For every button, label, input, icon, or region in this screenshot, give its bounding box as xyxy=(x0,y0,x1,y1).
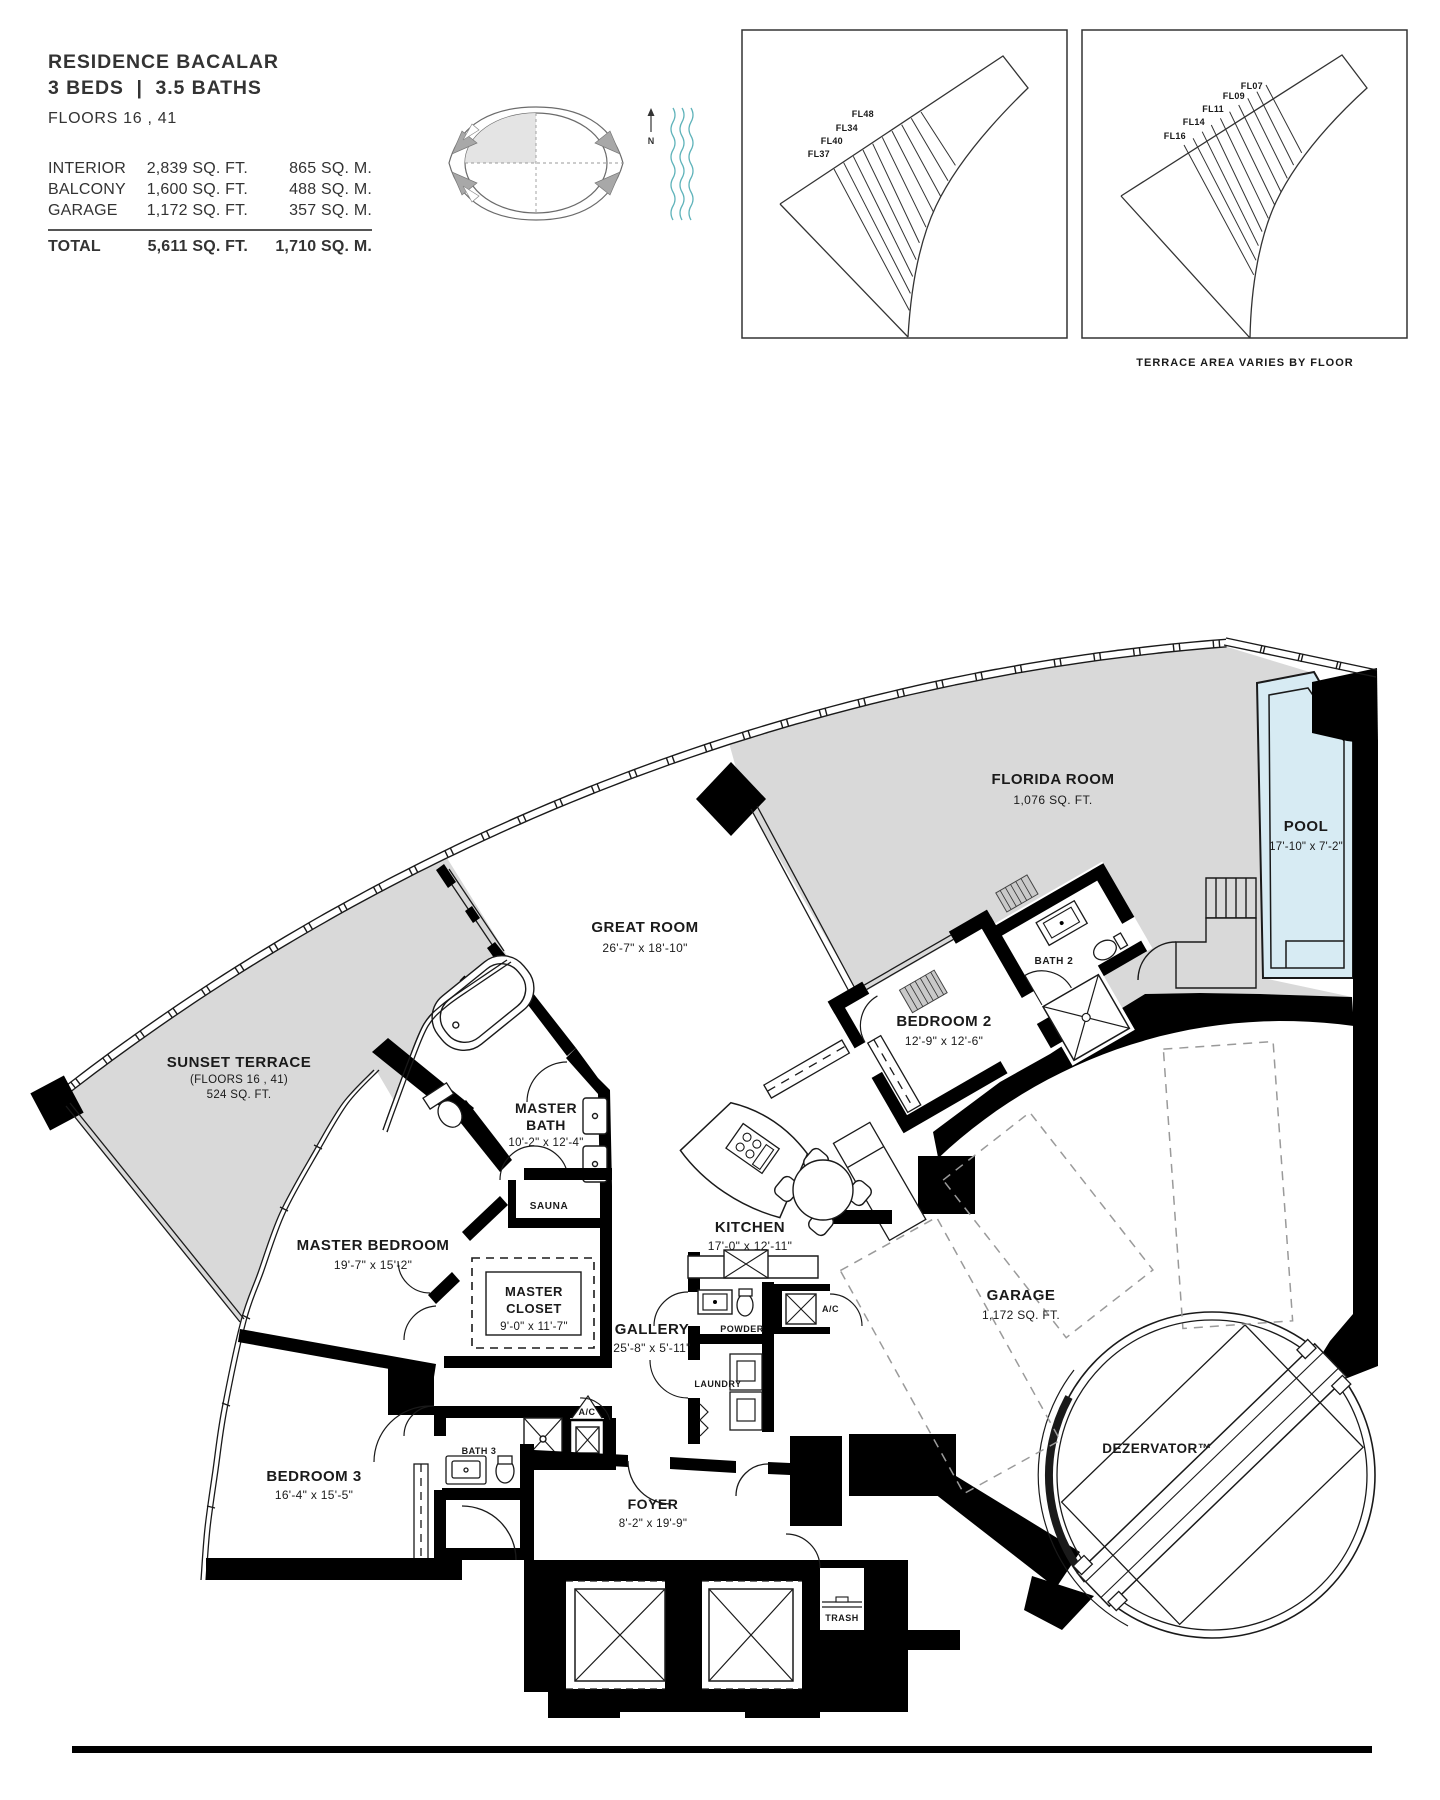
svg-text:FL34: FL34 xyxy=(836,123,858,133)
svg-text:LAUNDRY: LAUNDRY xyxy=(694,1379,741,1389)
svg-text:TRASH: TRASH xyxy=(825,1613,859,1623)
svg-text:(FLOORS 16 , 41): (FLOORS 16 , 41) xyxy=(190,1074,288,1086)
svg-text:FL14: FL14 xyxy=(1183,117,1205,127)
svg-text:FL37: FL37 xyxy=(808,149,830,159)
svg-text:BATH: BATH xyxy=(526,1117,566,1133)
svg-text:BATH 2: BATH 2 xyxy=(1035,956,1074,967)
svg-text:FL11: FL11 xyxy=(1202,104,1224,114)
svg-text:GARAGE: GARAGE xyxy=(987,1287,1056,1304)
svg-text:GALLERY: GALLERY xyxy=(615,1321,690,1338)
svg-text:TERRACE AREA VARIES BY FLOOR: TERRACE AREA VARIES BY FLOOR xyxy=(1136,357,1353,369)
svg-text:MASTER: MASTER xyxy=(515,1100,577,1116)
svg-text:8'-2" x 19'-9": 8'-2" x 19'-9" xyxy=(619,1518,688,1530)
svg-text:26'-7" x 18'-10": 26'-7" x 18'-10" xyxy=(602,941,687,955)
svg-text:17'-10" x 7'-2": 17'-10" x 7'-2" xyxy=(1269,841,1343,853)
svg-text:MASTER BEDROOM: MASTER BEDROOM xyxy=(297,1237,450,1254)
svg-text:KITCHEN: KITCHEN xyxy=(715,1219,785,1236)
svg-text:10'-2" x 12'-4": 10'-2" x 12'-4" xyxy=(508,1137,583,1149)
svg-text:BATH 3: BATH 3 xyxy=(462,1446,497,1456)
svg-text:GREAT ROOM: GREAT ROOM xyxy=(591,919,698,936)
svg-text:A/C: A/C xyxy=(822,1304,839,1314)
svg-text:524 SQ. FT.: 524 SQ. FT. xyxy=(207,1089,272,1101)
svg-text:SAUNA: SAUNA xyxy=(530,1201,569,1212)
svg-text:FLORIDA ROOM: FLORIDA ROOM xyxy=(992,771,1115,788)
svg-text:POWDER: POWDER xyxy=(720,1324,764,1334)
svg-text:FL40: FL40 xyxy=(821,136,843,146)
svg-text:FOYER: FOYER xyxy=(628,1496,679,1512)
svg-text:SUNSET TERRACE: SUNSET TERRACE xyxy=(167,1054,312,1071)
svg-text:A/C: A/C xyxy=(579,1407,596,1417)
svg-text:16'-4" x 15'-5": 16'-4" x 15'-5" xyxy=(275,1488,353,1502)
svg-text:25'-8" x 5'-11": 25'-8" x 5'-11" xyxy=(613,1341,690,1355)
svg-text:9'-0" x 11'-7": 9'-0" x 11'-7" xyxy=(500,1321,568,1333)
svg-text:CLOSET: CLOSET xyxy=(506,1301,562,1316)
svg-text:1,076 SQ. FT.: 1,076 SQ. FT. xyxy=(1013,793,1092,807)
svg-text:19'-7" x 15'-2": 19'-7" x 15'-2" xyxy=(334,1258,412,1272)
svg-text:FL48: FL48 xyxy=(852,109,874,119)
svg-text:POOL: POOL xyxy=(1284,818,1329,835)
svg-text:FL09: FL09 xyxy=(1223,91,1245,101)
svg-text:17'-0" x 12'-11": 17'-0" x 12'-11" xyxy=(708,1239,792,1253)
svg-text:MASTER: MASTER xyxy=(505,1284,563,1299)
svg-text:1,172 SQ. FT.: 1,172 SQ. FT. xyxy=(982,1308,1060,1322)
svg-text:DEZERVATOR™: DEZERVATOR™ xyxy=(1102,1441,1212,1456)
svg-text:N: N xyxy=(648,136,655,146)
svg-text:FL07: FL07 xyxy=(1241,81,1263,91)
svg-text:BEDROOM 2: BEDROOM 2 xyxy=(896,1013,991,1030)
svg-text:12'-9" x 12'-6": 12'-9" x 12'-6" xyxy=(905,1034,983,1048)
svg-text:FL16: FL16 xyxy=(1164,131,1186,141)
svg-text:BEDROOM 3: BEDROOM 3 xyxy=(266,1468,361,1485)
